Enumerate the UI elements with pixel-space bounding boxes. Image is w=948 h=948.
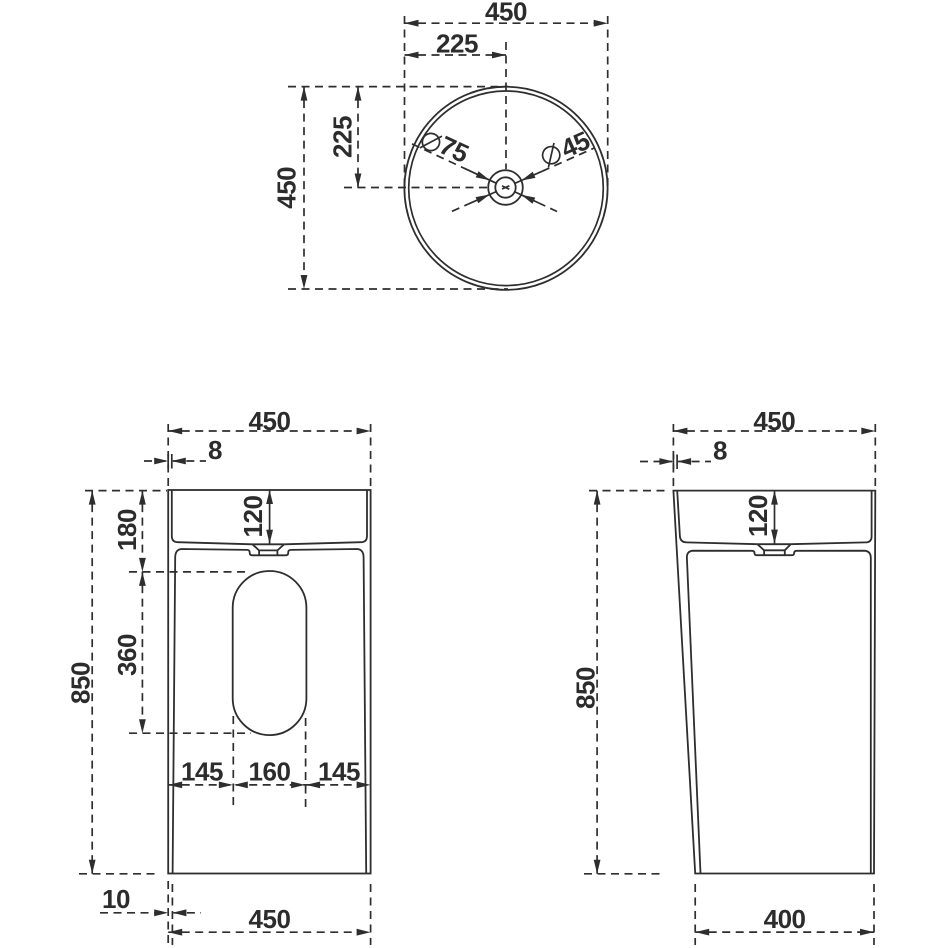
- svg-text:450: 450: [249, 904, 291, 934]
- svg-text:145: 145: [318, 757, 360, 787]
- svg-text:10: 10: [102, 884, 130, 914]
- svg-text:180: 180: [112, 509, 142, 551]
- svg-text:360: 360: [112, 634, 142, 676]
- svg-text:450: 450: [272, 167, 302, 209]
- svg-text:120: 120: [238, 496, 268, 538]
- svg-text:160: 160: [249, 757, 291, 787]
- svg-text:850: 850: [66, 662, 96, 704]
- svg-text:8: 8: [208, 435, 222, 465]
- svg-text:120: 120: [743, 495, 773, 537]
- svg-text:8: 8: [713, 436, 727, 466]
- svg-text:225: 225: [436, 28, 478, 58]
- svg-text:850: 850: [571, 667, 601, 709]
- svg-text:400: 400: [764, 904, 806, 934]
- svg-text:225: 225: [328, 116, 358, 158]
- svg-text:145: 145: [181, 757, 223, 787]
